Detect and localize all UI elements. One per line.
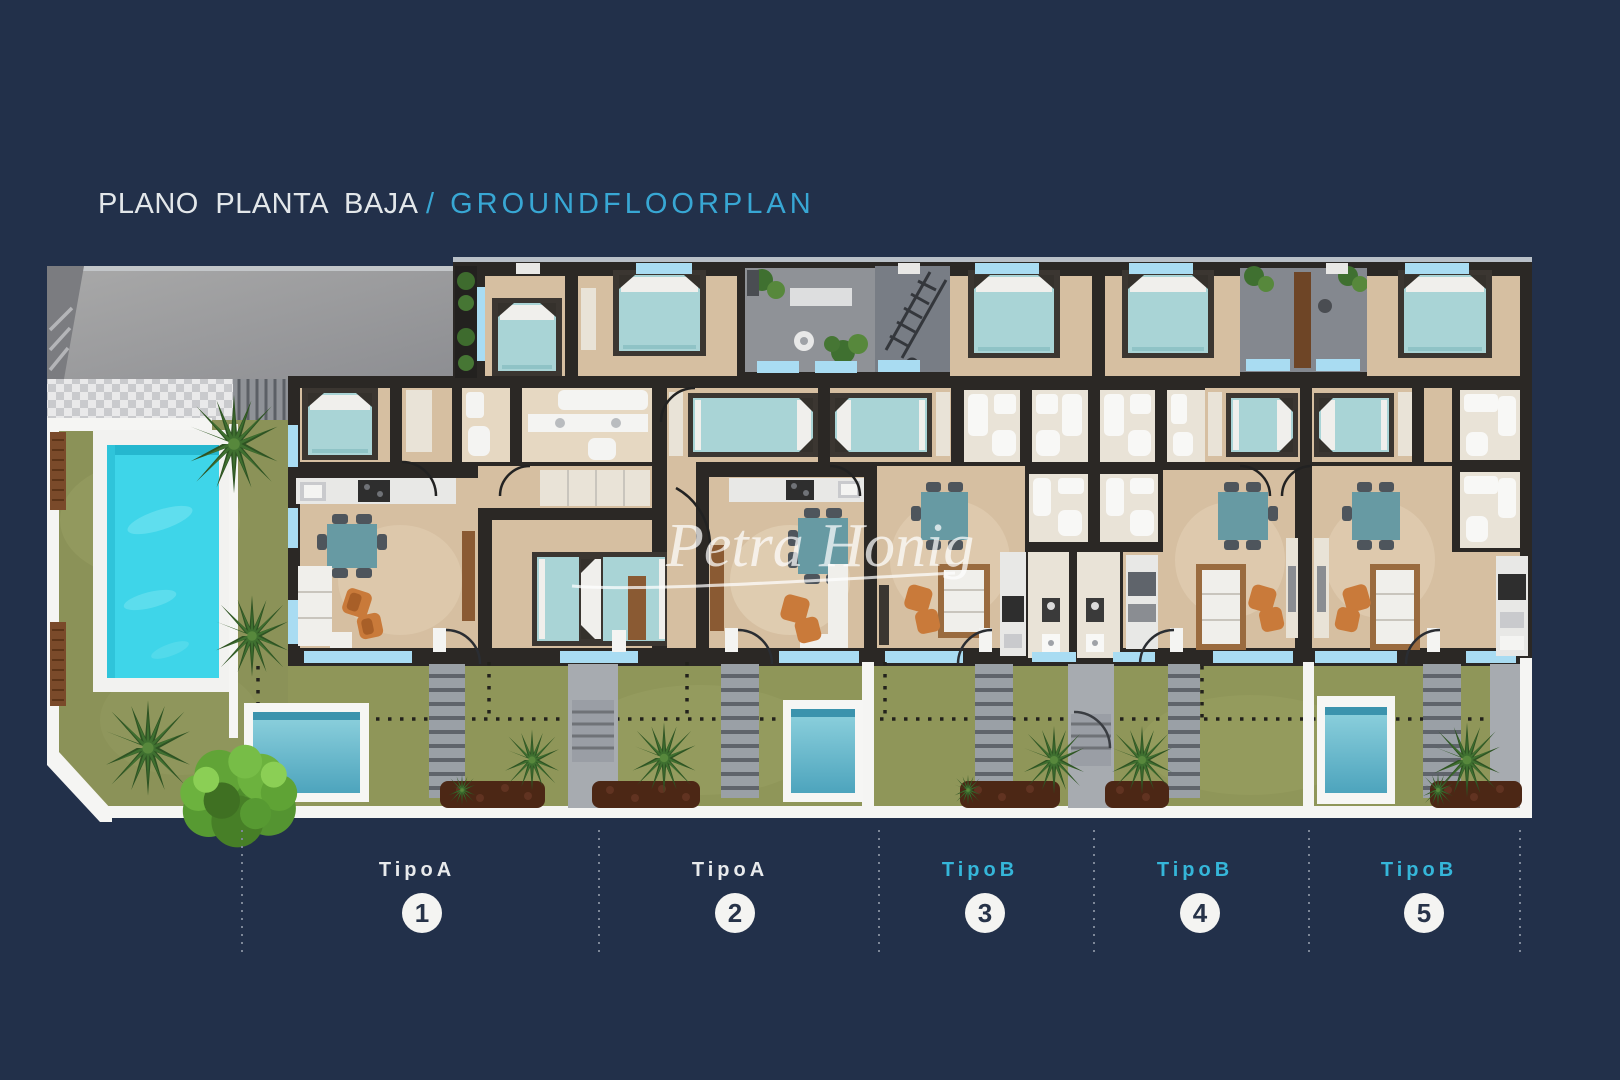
svg-text:5: 5 <box>1417 898 1431 928</box>
svg-text:2: 2 <box>728 898 742 928</box>
svg-text:TipoB: TipoB <box>942 859 1018 881</box>
svg-text:PLANO PLANTA BAJA: PLANO PLANTA BAJA <box>98 188 419 220</box>
svg-text:/ GROUNDFLOORPLAN: / GROUNDFLOORPLAN <box>426 188 815 220</box>
svg-text:TipoA: TipoA <box>379 859 455 881</box>
svg-text:TipoB: TipoB <box>1381 859 1457 881</box>
svg-text:Petra Honig: Petra Honig <box>665 512 974 580</box>
svg-text:3: 3 <box>978 898 992 928</box>
svg-text:1: 1 <box>415 898 429 928</box>
svg-text:TipoA: TipoA <box>692 859 768 881</box>
svg-text:TipoB: TipoB <box>1157 859 1233 881</box>
svg-text:4: 4 <box>1193 898 1208 928</box>
